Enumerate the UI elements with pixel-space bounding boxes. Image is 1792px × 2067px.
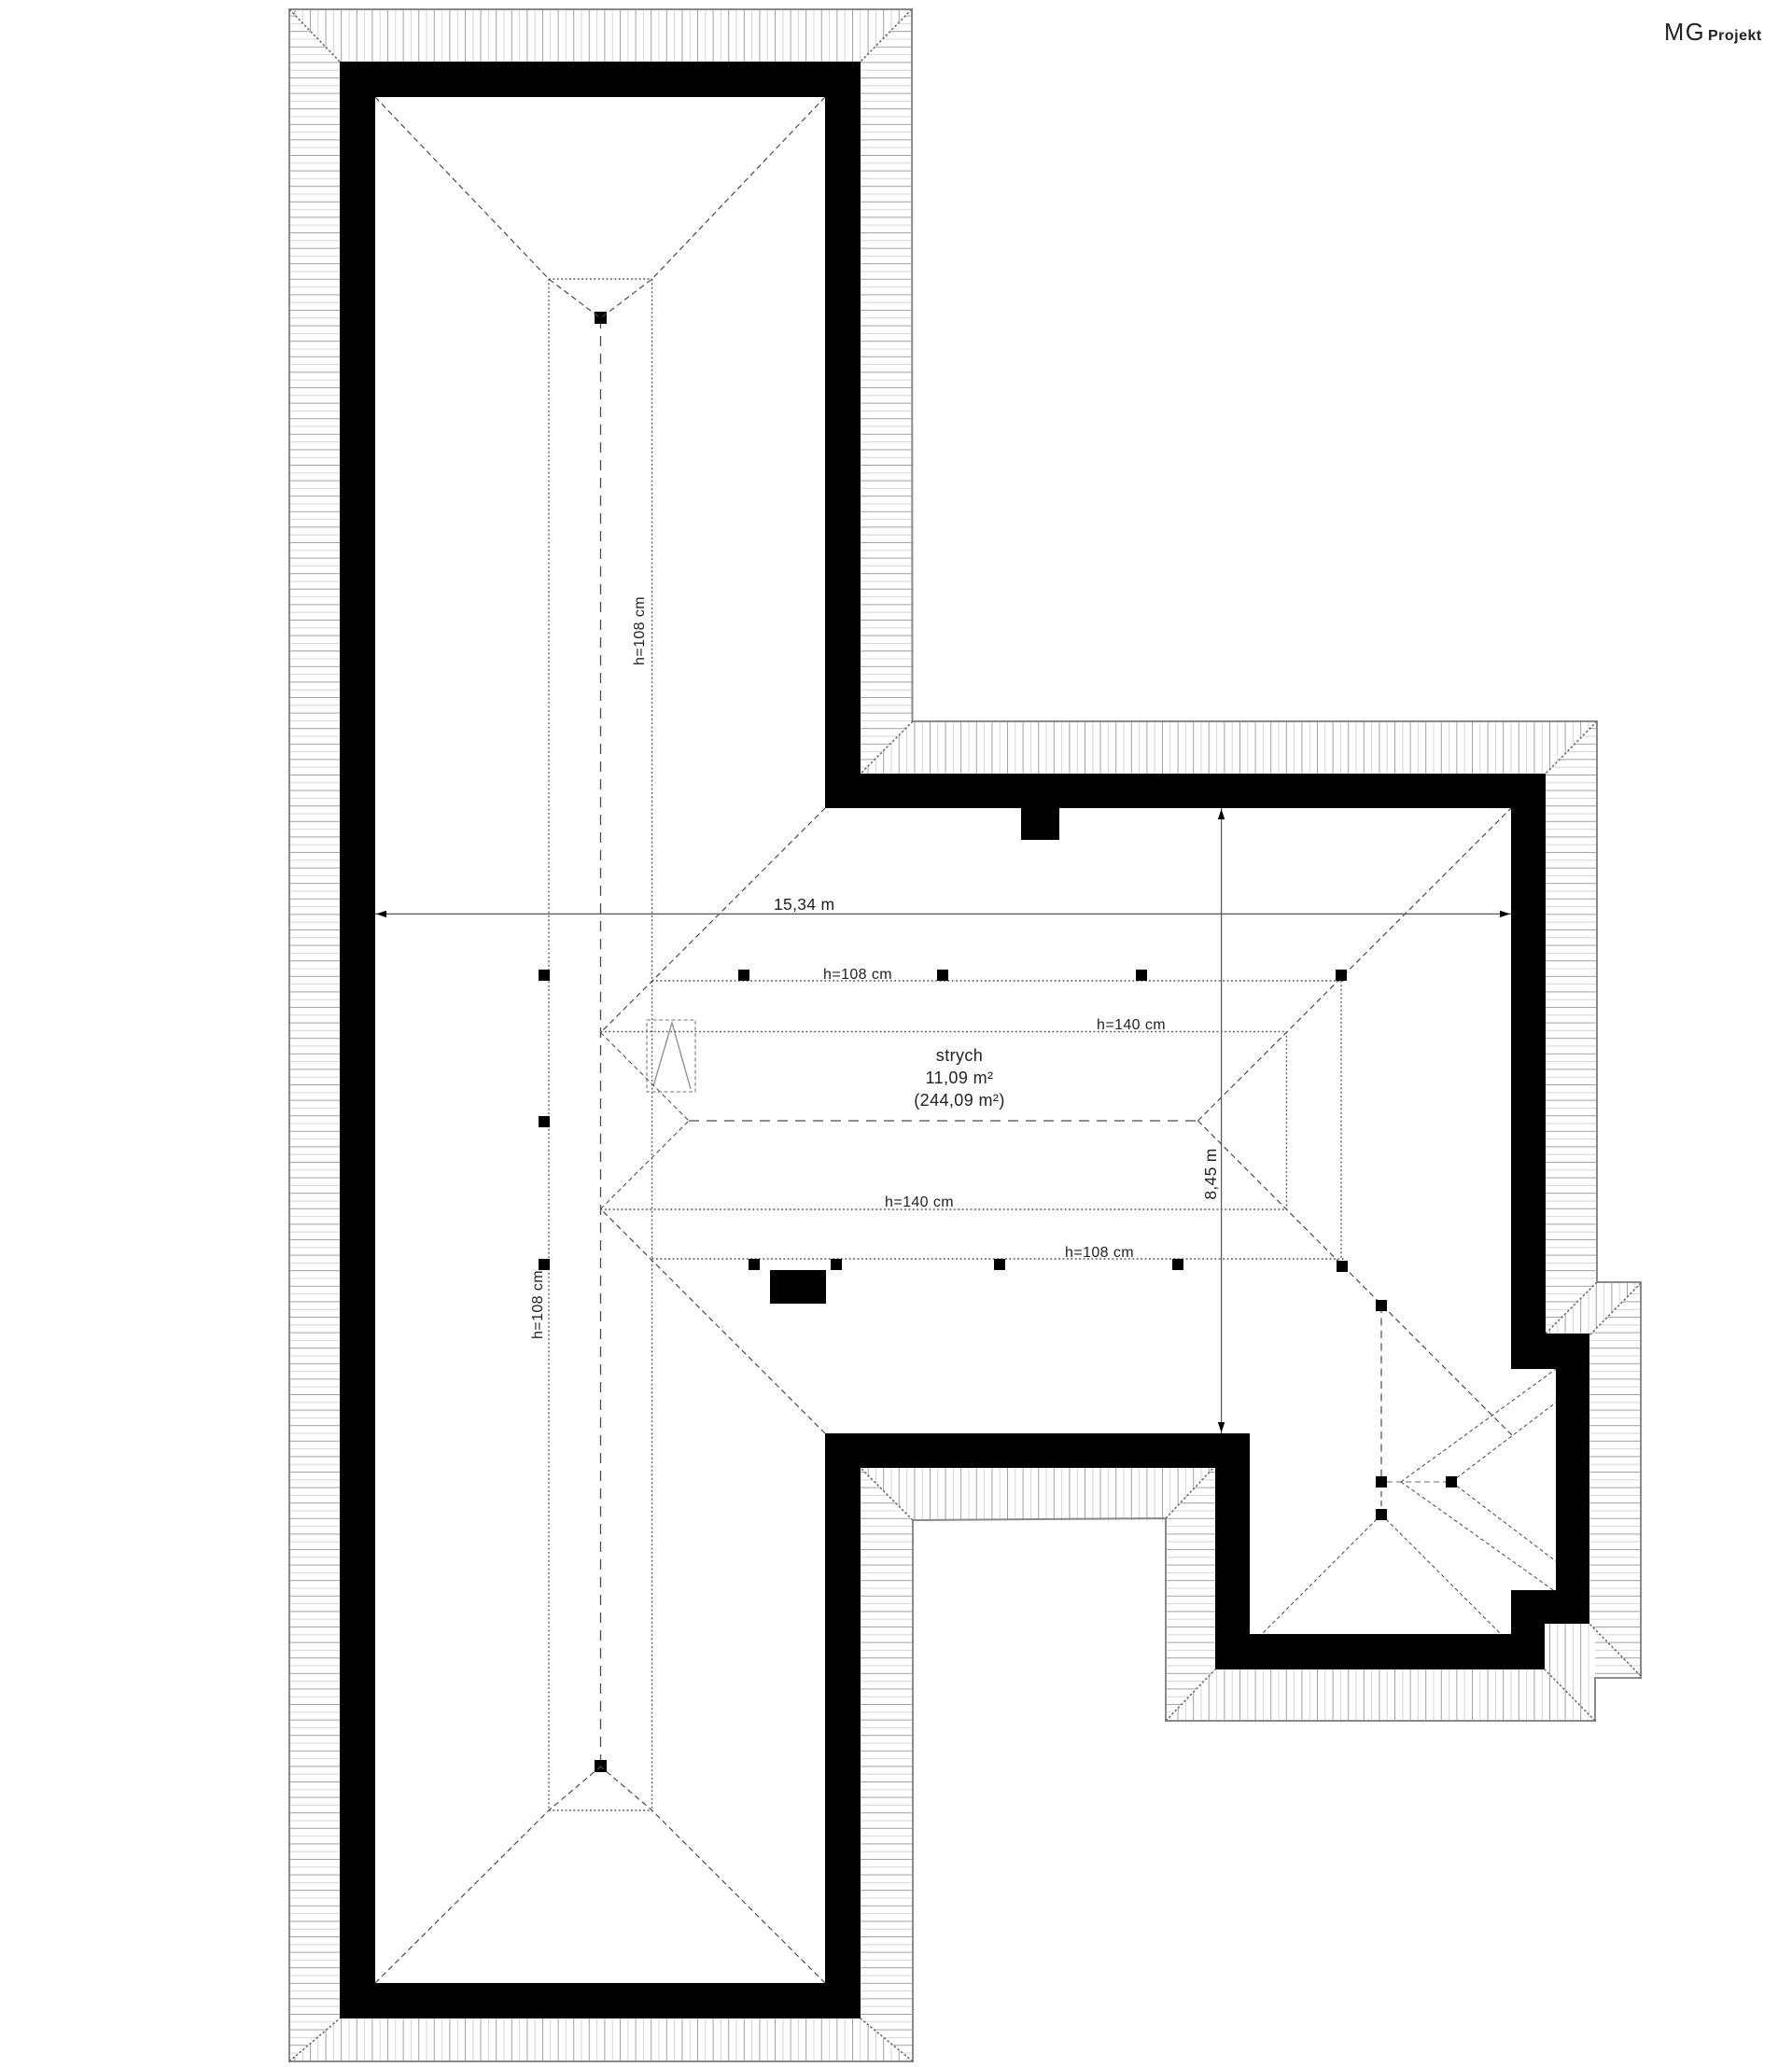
svg-text:MG: MG (1664, 20, 1705, 46)
svg-text:11,09 m²: 11,09 m² (926, 1068, 994, 1087)
svg-text:h=108 cm: h=108 cm (530, 1270, 546, 1339)
svg-text:8,45 m: 8,45 m (1201, 1148, 1220, 1199)
svg-text:h=140 cm: h=140 cm (1097, 1017, 1166, 1033)
svg-text:h=108 cm: h=108 cm (823, 967, 892, 983)
svg-text:Projekt: Projekt (1708, 28, 1762, 44)
svg-text:h=108 cm: h=108 cm (1065, 1245, 1134, 1261)
svg-text:strych: strych (936, 1046, 983, 1065)
svg-text:(244,09 m²): (244,09 m²) (914, 1091, 1004, 1110)
svg-text:15,34 m: 15,34 m (774, 895, 834, 914)
svg-text:h=140 cm: h=140 cm (885, 1194, 954, 1210)
svg-text:h=108 cm: h=108 cm (632, 596, 648, 665)
